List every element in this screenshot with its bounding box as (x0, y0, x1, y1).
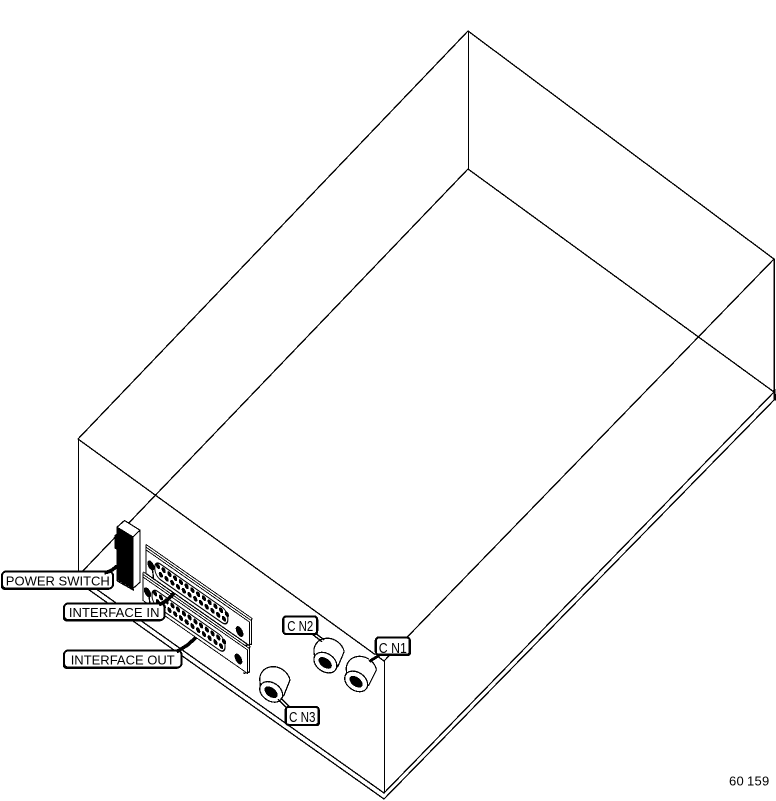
svg-text:C N3: C N3 (289, 709, 316, 726)
svg-text:C N1: C N1 (379, 640, 407, 657)
svg-text:60 159: 60 159 (729, 774, 770, 789)
svg-text:C N2: C N2 (287, 618, 313, 635)
svg-text:INTERFACE OUT: INTERFACE OUT (71, 652, 175, 667)
svg-text:INTERFACE IN: INTERFACE IN (69, 605, 160, 620)
svg-text:POWER SWITCH: POWER SWITCH (6, 574, 110, 589)
